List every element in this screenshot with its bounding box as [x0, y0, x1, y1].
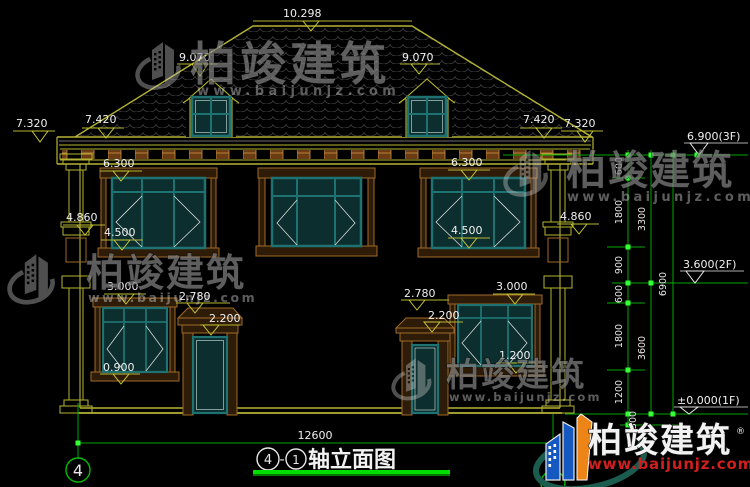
watermark-brand-text: 柏竣建筑	[566, 148, 734, 194]
dim-canopy-side-text: 2.780	[404, 287, 436, 300]
dim-pilaster-right-text: 4.860	[560, 210, 592, 223]
window-2f-center	[256, 168, 377, 256]
title-text: 轴立面图	[308, 447, 396, 473]
watermark-url-text: www.baijunjz.com	[197, 84, 400, 99]
watermark-url-text: www.baijunjz.com	[88, 290, 257, 305]
dim-ridge-text: 10.298	[283, 7, 322, 20]
dim-eave-inner-right-text: 7.420	[523, 113, 555, 126]
chain-v1-600b: 600	[614, 285, 625, 303]
watermark-right: 柏竣建筑 www.baijunjz.com	[501, 148, 750, 205]
dim-w2f-sill-right-text: 4.500	[451, 224, 483, 237]
story-3f-text: 6.900(3F)	[687, 130, 740, 143]
cad-elevation-drawing: 10.298 9.070 9.070 7.320 7.420 7.420	[0, 0, 750, 487]
brand-logo-reg-mark: ®	[736, 427, 745, 437]
dim-door-main-text: 2.200	[209, 312, 241, 325]
dim-eave-outer-left-text: 7.320	[16, 117, 48, 130]
watermark-brand-text: 柏竣建筑	[86, 251, 246, 295]
brand-logo-url: www.baijunjz.com	[588, 455, 750, 473]
brand-logo: 柏竣建筑 ® www.baijunjz.com	[531, 414, 750, 487]
drawing-canvas: 10.298 9.070 9.070 7.320 7.420 7.420	[0, 0, 750, 487]
chain-v1-1200: 1200	[614, 380, 625, 404]
watermark-left: 柏竣建筑 www.baijunjz.com	[5, 251, 257, 308]
watermark-logo-icon	[5, 254, 57, 307]
dim-roof-right-text: 9.070	[402, 51, 434, 64]
story-1f-text: ±0.000(1F)	[677, 394, 740, 407]
brand-logo-tower-icon	[546, 434, 560, 480]
dim-eave-outer-right-text: 7.320	[564, 117, 596, 130]
dim-eave-outer-right: 7.320	[561, 117, 603, 142]
dim-eave-inner-left-text: 7.420	[85, 113, 117, 126]
brand-logo-tower2-icon	[563, 422, 574, 480]
chain-v2-3300: 3300	[637, 207, 648, 231]
dim-w1f-sill-left-text: 0.900	[103, 361, 135, 374]
cornice-band	[57, 137, 593, 164]
overall-dim-text: 12600	[298, 429, 333, 442]
window-2f-left	[98, 168, 219, 257]
title-axis-a: 4	[264, 453, 272, 468]
drawing-title: 4 - 1 轴立面图	[253, 447, 450, 476]
dim-pilaster-left: 4.860	[63, 211, 105, 235]
chain-v3-6900: 6900	[658, 272, 669, 296]
chain-v2-3600: 3600	[637, 336, 648, 360]
dim-canopy-side: 2.780	[401, 287, 449, 310]
chain-v1-1800b: 1800	[614, 324, 625, 348]
chain-v1-900: 900	[614, 256, 625, 274]
dim-w2f-head-left-text: 6.300	[103, 157, 135, 170]
dim-w2f-head-right-text: 6.300	[451, 156, 483, 169]
dim-w1f-head-right-text: 3.000	[496, 280, 528, 293]
axis-bubble-4-text: 4	[73, 461, 83, 480]
bottom-area: 12600 4 4 - 1 轴立面图	[66, 403, 565, 487]
watermark-brand-text: 柏竣建筑	[190, 37, 390, 91]
watermark-url-text: www.baijunjz.com	[567, 190, 750, 205]
title-axis-b: 1	[292, 453, 300, 467]
watermark-url-text: www.baijunjz.com	[449, 390, 602, 404]
story-2f-text: 3.600(2F)	[683, 258, 736, 271]
dim-pilaster-left-text: 4.860	[66, 211, 98, 224]
story-marker-1f: ±0.000(1F)	[674, 394, 748, 414]
dim-eave-outer-left: 7.320	[13, 117, 55, 142]
title-underline	[253, 470, 450, 474]
dim-w2f-sill-left-text: 4.500	[104, 226, 136, 239]
watermark-brand-text: 柏竣建筑	[446, 355, 586, 394]
title-underline-shadow	[253, 474, 450, 476]
title-dash: -	[279, 452, 284, 468]
dim-pilaster-right: 4.860	[557, 210, 599, 234]
dim-door-side-text: 2.200	[428, 309, 460, 322]
story-marker-2f: 3.600(2F)	[680, 258, 744, 283]
